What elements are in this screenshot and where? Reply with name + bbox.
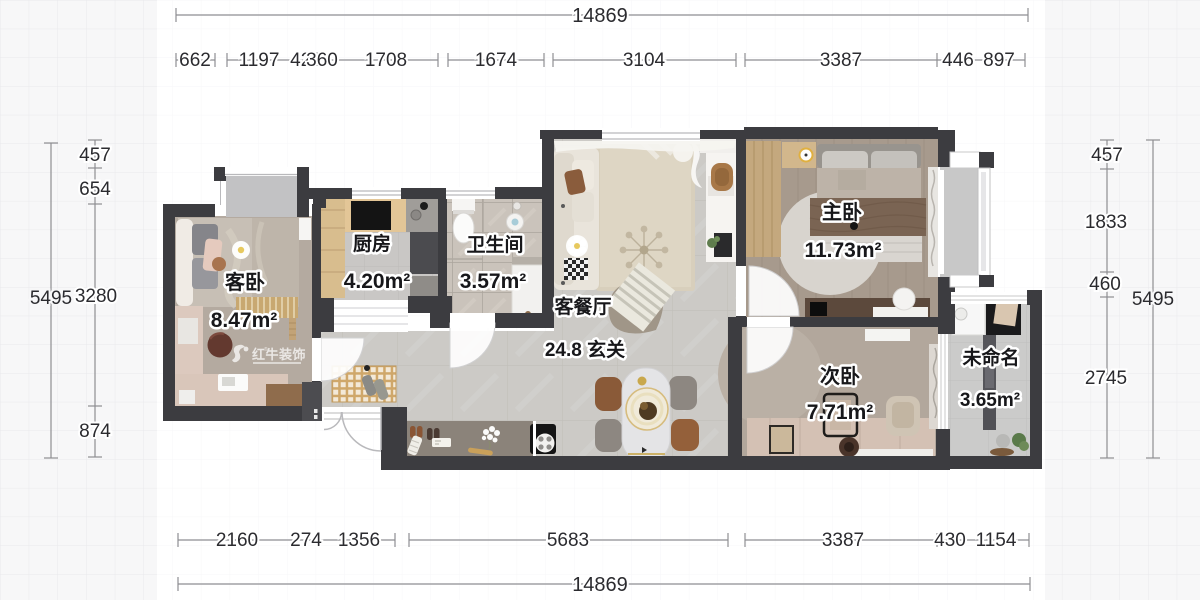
svg-text:874: 874 bbox=[79, 421, 111, 442]
svg-text:2745: 2745 bbox=[1085, 368, 1127, 389]
svg-text:红牛装饰: 红牛装饰 bbox=[252, 347, 306, 362]
svg-text:457: 457 bbox=[79, 145, 111, 166]
svg-text:1833: 1833 bbox=[1085, 212, 1127, 233]
svg-text:3387: 3387 bbox=[820, 50, 862, 71]
svg-text:430: 430 bbox=[934, 530, 966, 551]
svg-text:5683: 5683 bbox=[547, 530, 589, 551]
svg-text:457: 457 bbox=[1091, 145, 1123, 166]
svg-text:3.57m²: 3.57m² bbox=[460, 270, 527, 293]
svg-text:14869: 14869 bbox=[572, 574, 628, 596]
svg-text:1154: 1154 bbox=[976, 530, 1017, 551]
svg-text:3.65m²: 3.65m² bbox=[960, 390, 1020, 411]
svg-text:3280: 3280 bbox=[75, 286, 117, 307]
svg-text:卫生间: 卫生间 bbox=[466, 233, 523, 256]
svg-text:未命名: 未命名 bbox=[961, 346, 1019, 369]
svg-text:主卧: 主卧 bbox=[822, 200, 862, 224]
svg-text:654: 654 bbox=[79, 179, 111, 200]
svg-text:4.20m²: 4.20m² bbox=[344, 270, 411, 293]
svg-text:360: 360 bbox=[306, 50, 338, 71]
svg-text:2160: 2160 bbox=[216, 530, 258, 551]
svg-text:460: 460 bbox=[1089, 274, 1121, 295]
svg-text:客餐厅: 客餐厅 bbox=[554, 295, 611, 318]
svg-text:1674: 1674 bbox=[475, 50, 518, 71]
svg-text:897: 897 bbox=[983, 50, 1015, 71]
svg-text:7.71m²: 7.71m² bbox=[807, 401, 874, 424]
svg-text:1356: 1356 bbox=[338, 530, 380, 551]
svg-text:14869: 14869 bbox=[572, 5, 628, 27]
svg-text:1708: 1708 bbox=[365, 50, 407, 71]
svg-text:274: 274 bbox=[290, 530, 322, 551]
svg-text:客卧: 客卧 bbox=[224, 270, 265, 294]
svg-text:厨房: 厨房 bbox=[353, 232, 391, 255]
svg-text:24.8 玄关: 24.8 玄关 bbox=[545, 338, 625, 361]
svg-text:8.47m²: 8.47m² bbox=[211, 309, 278, 332]
svg-text:446: 446 bbox=[942, 50, 974, 71]
svg-text:5495: 5495 bbox=[1132, 289, 1174, 310]
svg-text:5495: 5495 bbox=[30, 288, 72, 309]
svg-text:3104: 3104 bbox=[623, 50, 666, 71]
svg-text:次卧: 次卧 bbox=[820, 364, 860, 388]
svg-text:662: 662 bbox=[179, 50, 211, 71]
svg-text:1197: 1197 bbox=[239, 50, 280, 71]
svg-text:3387: 3387 bbox=[822, 530, 864, 551]
svg-text:®: ® bbox=[264, 346, 268, 353]
svg-text:11.73m²: 11.73m² bbox=[804, 239, 881, 262]
